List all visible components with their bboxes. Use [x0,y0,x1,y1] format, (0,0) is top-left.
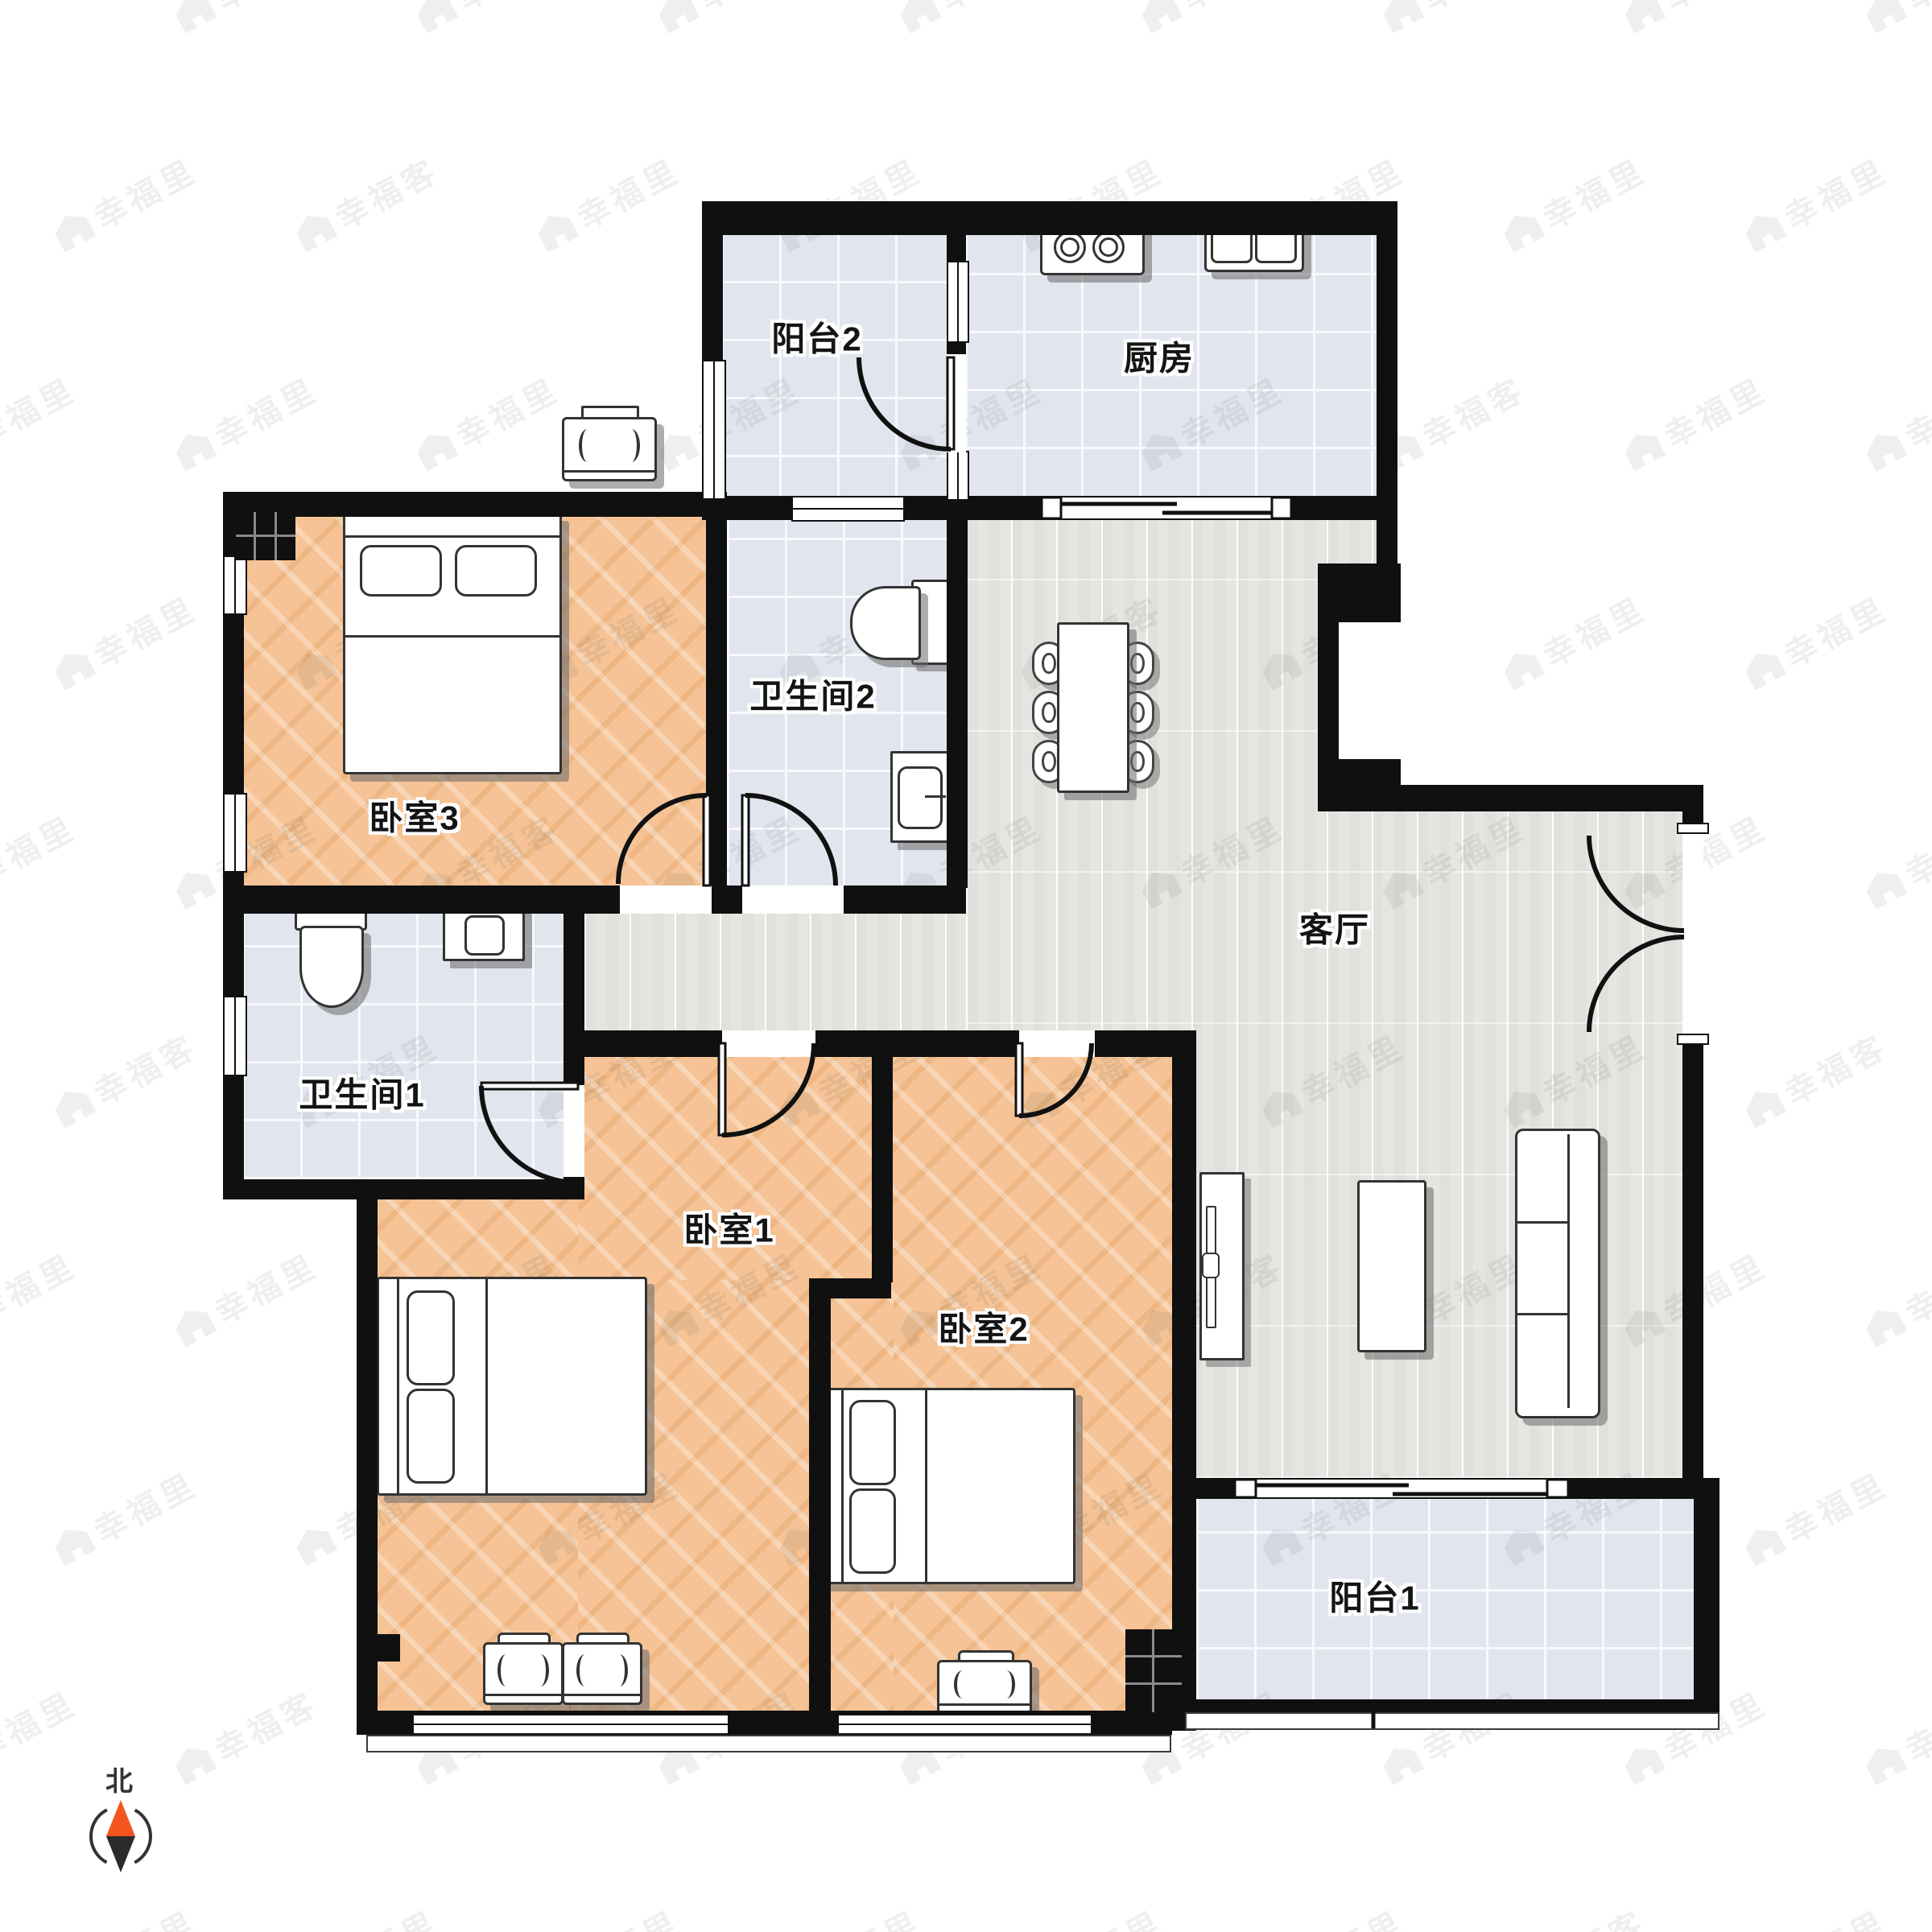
room-label-bathroom-2: 卫生间2 [749,670,876,719]
room-label-living: 客厅 [1299,903,1370,952]
floor-plan: 幸福里幸福里幸福里幸福客幸福里幸福里幸福里幸福里幸福里幸福里幸福客幸福里幸福里幸… [0,0,1932,1932]
room-label-balcony-2: 阳台2 [771,312,862,361]
room-label-kitchen: 厨房 [1124,332,1195,381]
room-label-bedroom-1: 卧室1 [683,1203,774,1253]
room-label-bedroom-3: 卧室3 [369,791,460,840]
room-label-balcony-1: 阳台1 [1329,1571,1420,1620]
labels-layer: 阳台2 厨房 卧室3 卫生间2 客厅 卫生间1 卧室1 卧室2 阳台1 北 [0,0,1932,1932]
room-label-bathroom-1: 卫生间1 [299,1068,425,1117]
compass-north-label: 北 [105,1760,133,1799]
room-label-bedroom-2: 卧室2 [938,1302,1029,1352]
